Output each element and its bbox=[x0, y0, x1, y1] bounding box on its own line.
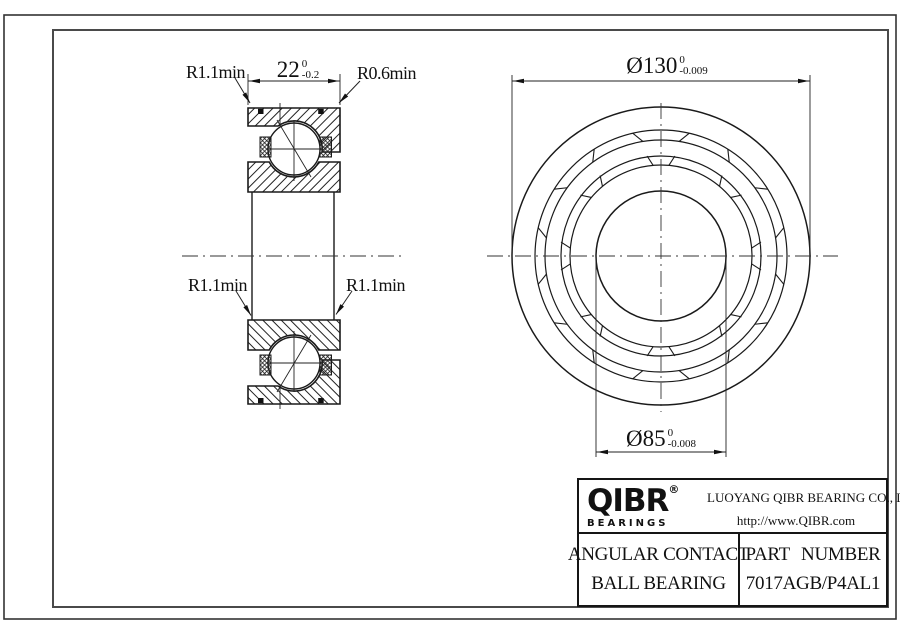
brand-name: QIBR bbox=[587, 483, 668, 519]
brand-subtitle: BEARINGS bbox=[587, 518, 679, 529]
product-type-cell: ANGULAR CONTACT BALL BEARING bbox=[579, 534, 740, 605]
product-type-line2: BALL BEARING bbox=[591, 573, 726, 595]
title-block-product-row: ANGULAR CONTACT BALL BEARING PART NUMBER… bbox=[579, 534, 886, 605]
outer-diameter-tolerance-lower: -0.009 bbox=[679, 66, 707, 77]
company-info: LUOYANG QIBR BEARING CO., LTD http://www… bbox=[707, 490, 885, 529]
width-dimension-text: 22 0 -0.2 bbox=[277, 58, 319, 81]
width-tolerance: 0 -0.2 bbox=[302, 59, 319, 81]
bore-diameter-value: Ø85 bbox=[626, 427, 666, 450]
company-logo: QIBR® BEARINGS bbox=[587, 483, 679, 529]
radius-label-bottom-left: R1.1min bbox=[188, 276, 247, 294]
bore-diameter-tolerance: 0 -0.008 bbox=[668, 428, 696, 450]
drawing-sheet: R1.1min R0.6min R1.1min R1.1min 22 0 -0.… bbox=[0, 0, 900, 636]
radius-label-top-left: R1.1min bbox=[186, 63, 245, 81]
title-block: QIBR® BEARINGS LUOYANG QIBR BEARING CO.,… bbox=[577, 478, 888, 607]
company-website: http://www.QIBR.com bbox=[707, 513, 885, 529]
part-number-label: PART NUMBER bbox=[745, 544, 880, 566]
bore-diameter-dimension-text: Ø85 0 -0.008 bbox=[626, 427, 696, 450]
radius-label-bottom-right: R1.1min bbox=[346, 276, 405, 294]
product-type-line1: ANGULAR CONTACT bbox=[568, 544, 749, 566]
outer-diameter-value: Ø130 bbox=[626, 54, 677, 77]
width-tolerance-lower: -0.2 bbox=[302, 70, 319, 81]
bore-diameter-tolerance-lower: -0.008 bbox=[668, 439, 696, 450]
title-block-header-row: QIBR® BEARINGS LUOYANG QIBR BEARING CO.,… bbox=[579, 480, 886, 534]
cross-section-view bbox=[182, 103, 405, 409]
part-number-cell: PART NUMBER 7017AGB/P4AL1 bbox=[740, 534, 886, 605]
outer-diameter-tolerance: 0 -0.009 bbox=[679, 55, 707, 77]
part-number-value: 7017AGB/P4AL1 bbox=[746, 573, 880, 595]
radius-label-top-right: R0.6min bbox=[357, 64, 416, 82]
registered-mark-icon: ® bbox=[668, 483, 679, 496]
outer-diameter-dimension-text: Ø130 0 -0.009 bbox=[626, 54, 708, 77]
company-name: LUOYANG QIBR BEARING CO., LTD bbox=[707, 490, 885, 506]
front-view bbox=[487, 103, 838, 412]
width-value: 22 bbox=[277, 58, 300, 81]
